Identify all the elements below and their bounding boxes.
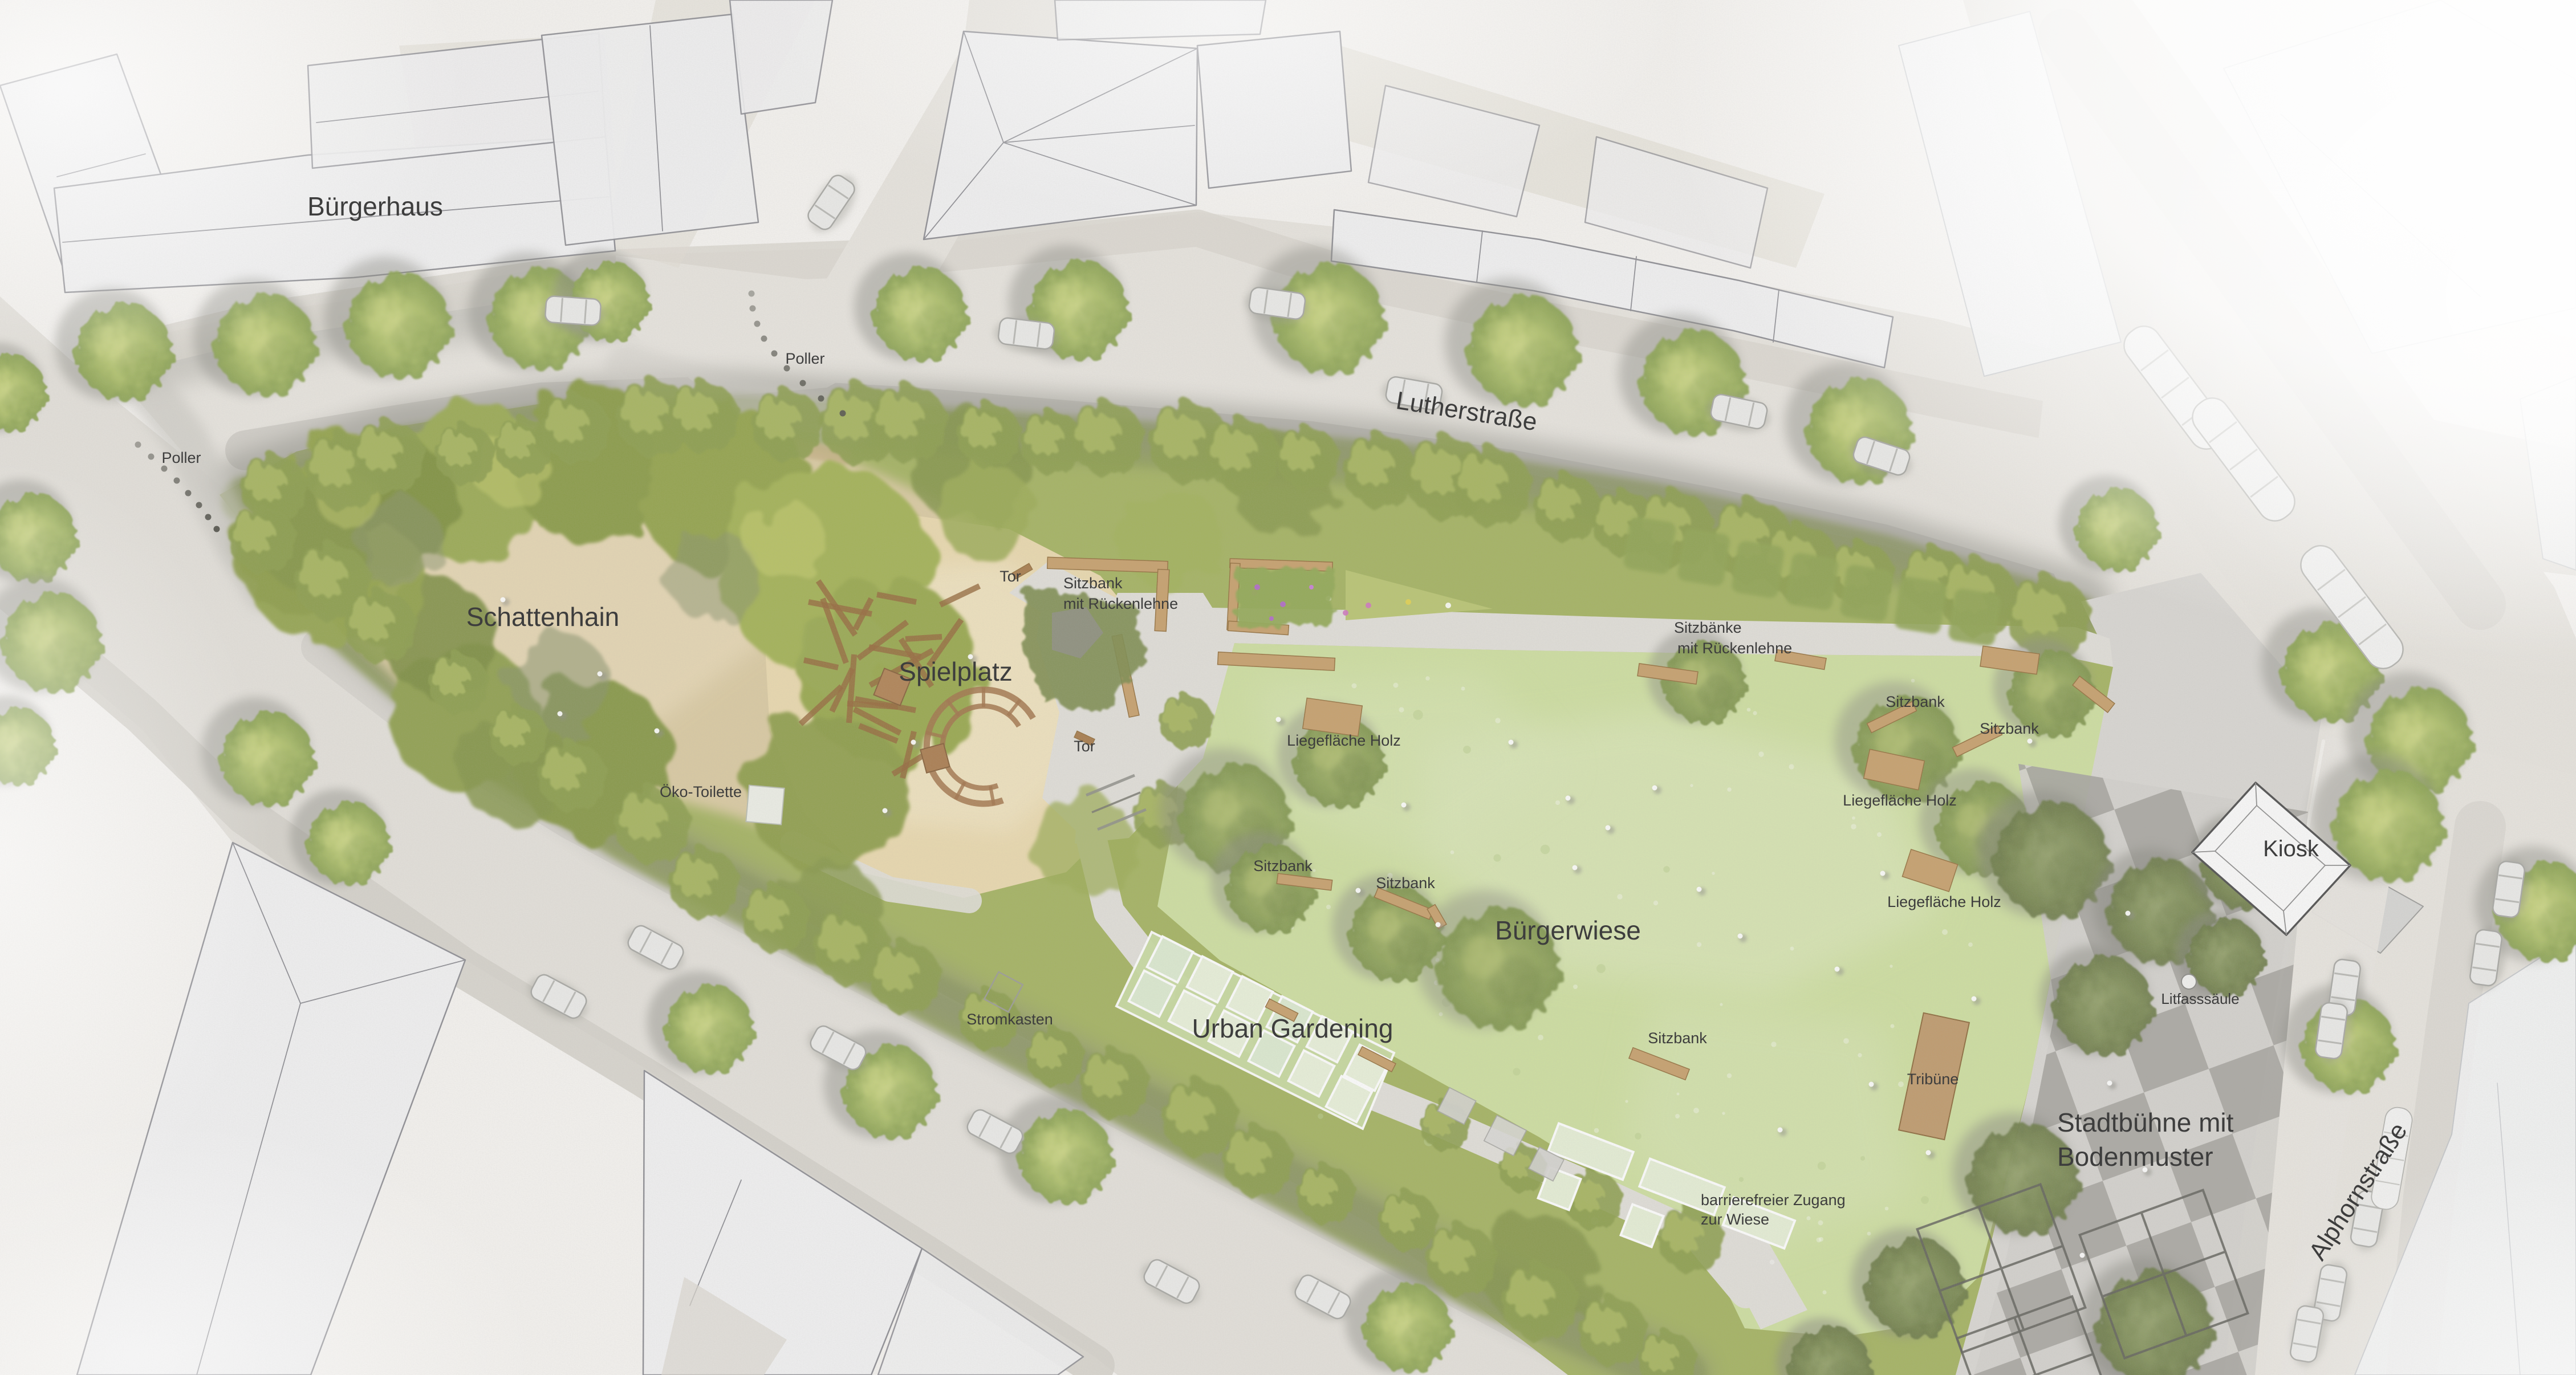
svg-text:Tor: Tor (1074, 738, 1095, 755)
svg-text:barrierefreier Zugang: barrierefreier Zugang (1701, 1191, 1846, 1209)
svg-text:Poller: Poller (785, 350, 824, 367)
svg-text:Poller: Poller (161, 449, 201, 466)
svg-text:Spielplatz: Spielplatz (899, 657, 1012, 686)
svg-text:Stadtbühne mit: Stadtbühne mit (2057, 1108, 2234, 1137)
svg-text:Bodenmuster: Bodenmuster (2057, 1142, 2213, 1171)
svg-text:Sitzbank: Sitzbank (1886, 693, 1945, 710)
svg-text:Bürgerhaus: Bürgerhaus (307, 192, 443, 221)
svg-text:Tor: Tor (999, 568, 1021, 585)
svg-text:mit Rückenlehne: mit Rückenlehne (1677, 640, 1792, 657)
svg-text:mit Rückenlehne: mit Rückenlehne (1063, 595, 1178, 612)
svg-text:Sitzbänke: Sitzbänke (1674, 619, 1742, 636)
svg-text:Sitzbank: Sitzbank (1980, 720, 2039, 737)
svg-text:Sitzbank: Sitzbank (1376, 874, 1435, 892)
svg-text:Sitzbank: Sitzbank (1063, 575, 1123, 592)
svg-text:Liegefläche Holz: Liegefläche Holz (1287, 732, 1401, 749)
svg-text:Liegefläche Holz: Liegefläche Holz (1887, 893, 2001, 910)
svg-text:Liegefläche Holz: Liegefläche Holz (1843, 792, 1957, 809)
svg-text:Sitzbank: Sitzbank (1253, 857, 1313, 874)
svg-text:Litfasssäule: Litfasssäule (2161, 990, 2239, 1007)
svg-text:Tribüne: Tribüne (1907, 1071, 1959, 1088)
svg-text:Stromkasten: Stromkasten (966, 1011, 1053, 1028)
svg-text:Öko-Toilette: Öko-Toilette (660, 783, 742, 800)
svg-text:Urban Gardening: Urban Gardening (1192, 1014, 1393, 1043)
svg-text:zur Wiese: zur Wiese (1701, 1211, 1769, 1228)
svg-text:Sitzbank: Sitzbank (1648, 1030, 1707, 1047)
svg-text:Kiosk: Kiosk (2263, 836, 2319, 861)
svg-text:Bürgerwiese: Bürgerwiese (1495, 916, 1641, 945)
svg-text:Schattenhain: Schattenhain (466, 602, 620, 632)
